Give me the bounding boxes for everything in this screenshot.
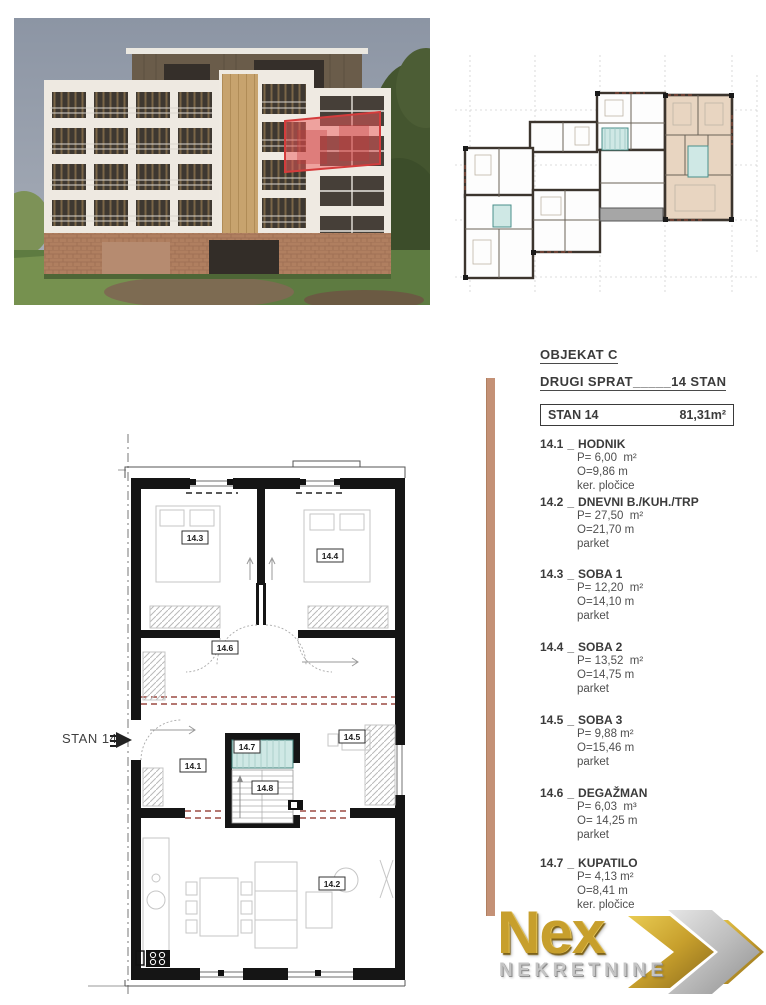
svg-text:14.1: 14.1 [185,761,202,771]
room-code: 14.4 [540,640,563,654]
unit-summary-box: STAN 14 81,31m² [540,404,734,426]
room-perimeter: O= 14,25 m [577,814,766,828]
room-perimeter: O=21,70 m [577,523,766,537]
object-title: OBJEKAT C [540,347,618,364]
floor-overview-drawing [445,15,766,305]
room-label-14-4: 14.4 [317,549,343,562]
room-name: DEGAŽMAN [578,786,647,800]
floor-plan-detail-drawing: 14.3 14.4 14.6 14.1 14.7 14.5 14.8 14.2 … [60,430,420,1000]
room-area: P= 9,88 m² [577,727,766,741]
room-area: P= 4,13 m² [577,870,766,884]
room-perimeter: O=14,75 m [577,668,766,682]
room-name: SOBA 3 [578,713,622,727]
room-name: HODNIK [578,437,625,451]
room-area: P= 13,52 m² [577,654,766,668]
room-area: P= 12,20 m² [577,581,766,595]
stove-icon [136,950,170,967]
room-entry: 14.1_HODNIK P= 6,00 m² O=9,86 m ker. plo… [540,437,766,493]
room-floor: parket [577,755,766,769]
room-code: 14.6 [540,786,563,800]
room-floor: ker. pločice [577,479,766,493]
building-render-drawing [14,18,430,305]
floor-plan-overview [445,15,766,305]
room-floor: parket [577,609,766,623]
info-panel: OBJEKAT C DRUGI SPRAT_____14 STAN STAN 1… [540,346,766,926]
room-perimeter: O=9,86 m [577,465,766,479]
unit-highlight-box [285,112,380,172]
room-floor: parket [577,537,766,551]
svg-text:14.8: 14.8 [257,783,274,793]
room-label-14-7: 14.7 [234,740,260,753]
entrance-label: STAN 14 [62,731,117,746]
room-label-14-5: 14.5 [339,730,365,743]
room-code: 14.5 [540,713,563,727]
room-label-14-3: 14.3 [182,531,208,544]
unit-label: STAN 14 [548,408,598,422]
room-labels: 14.3 14.4 14.6 14.1 14.7 14.5 14.8 14.2 [180,531,365,890]
room-name: DNEVNI B./KUH./TRP [578,495,699,509]
svg-text:14.3: 14.3 [187,533,204,543]
room-area: P= 27,50 m² [577,509,766,523]
room-label-14-6: 14.6 [212,641,238,654]
room-area: P= 6,00 m² [577,451,766,465]
svg-text:14.2: 14.2 [324,879,341,889]
svg-text:14.5: 14.5 [344,732,361,742]
room-name: KUPATILO [578,856,638,870]
svg-text:14.6: 14.6 [217,643,234,653]
entrance-arrow-icon [116,732,132,748]
svg-text:14.4: 14.4 [322,551,339,561]
room-entry: 14.3_SOBA 1 P= 12,20 m² O=14,10 m parket [540,567,766,623]
room-floor: parket [577,682,766,696]
entrance-callout: STAN 14 [62,731,132,748]
room-perimeter: O=15,46 m [577,741,766,755]
room-code: 14.1 [540,437,563,451]
balcony-strip [600,208,663,221]
svg-text:14.7: 14.7 [239,742,256,752]
floor-title: DRUGI SPRAT_____14 STAN [540,374,726,391]
room-name: SOBA 1 [578,567,622,581]
room-label-14-1: 14.1 [180,759,206,772]
room-perimeter: O=8,41 m [577,884,766,898]
floor-plan-detail: 14.3 14.4 14.6 14.1 14.7 14.5 14.8 14.2 … [60,430,420,1000]
room-floor: parket [577,828,766,842]
room-code: 14.3 [540,567,563,581]
logo-brand: Nex [497,898,604,967]
room-label-14-2: 14.2 [319,877,345,890]
walls [131,478,405,980]
direction-arrows [150,558,358,734]
unit-area: 81,31m² [679,408,726,422]
nex-logo: Nex NEKRETNINE [497,908,766,994]
room-perimeter: O=14,10 m [577,595,766,609]
room-label-14-8: 14.8 [252,781,278,794]
room-entry: 14.5_SOBA 3 P= 9,88 m² O=15,46 m parket [540,713,766,769]
room-name: SOBA 2 [578,640,622,654]
room-entry: 14.4_SOBA 2 P= 13,52 m² O=14,75 m parket [540,640,766,696]
building-render [14,18,430,305]
divider-bar [486,378,495,916]
room-entry: 14.6_DEGAŽMAN P= 6,03 m³ O= 14,25 m park… [540,786,766,842]
room-code: 14.7 [540,856,563,870]
room-code: 14.2 [540,495,563,509]
room-area: P= 6,03 m³ [577,800,766,814]
room-entry: 14.2_DNEVNI B./KUH./TRP P= 27,50 m² O=21… [540,495,766,551]
